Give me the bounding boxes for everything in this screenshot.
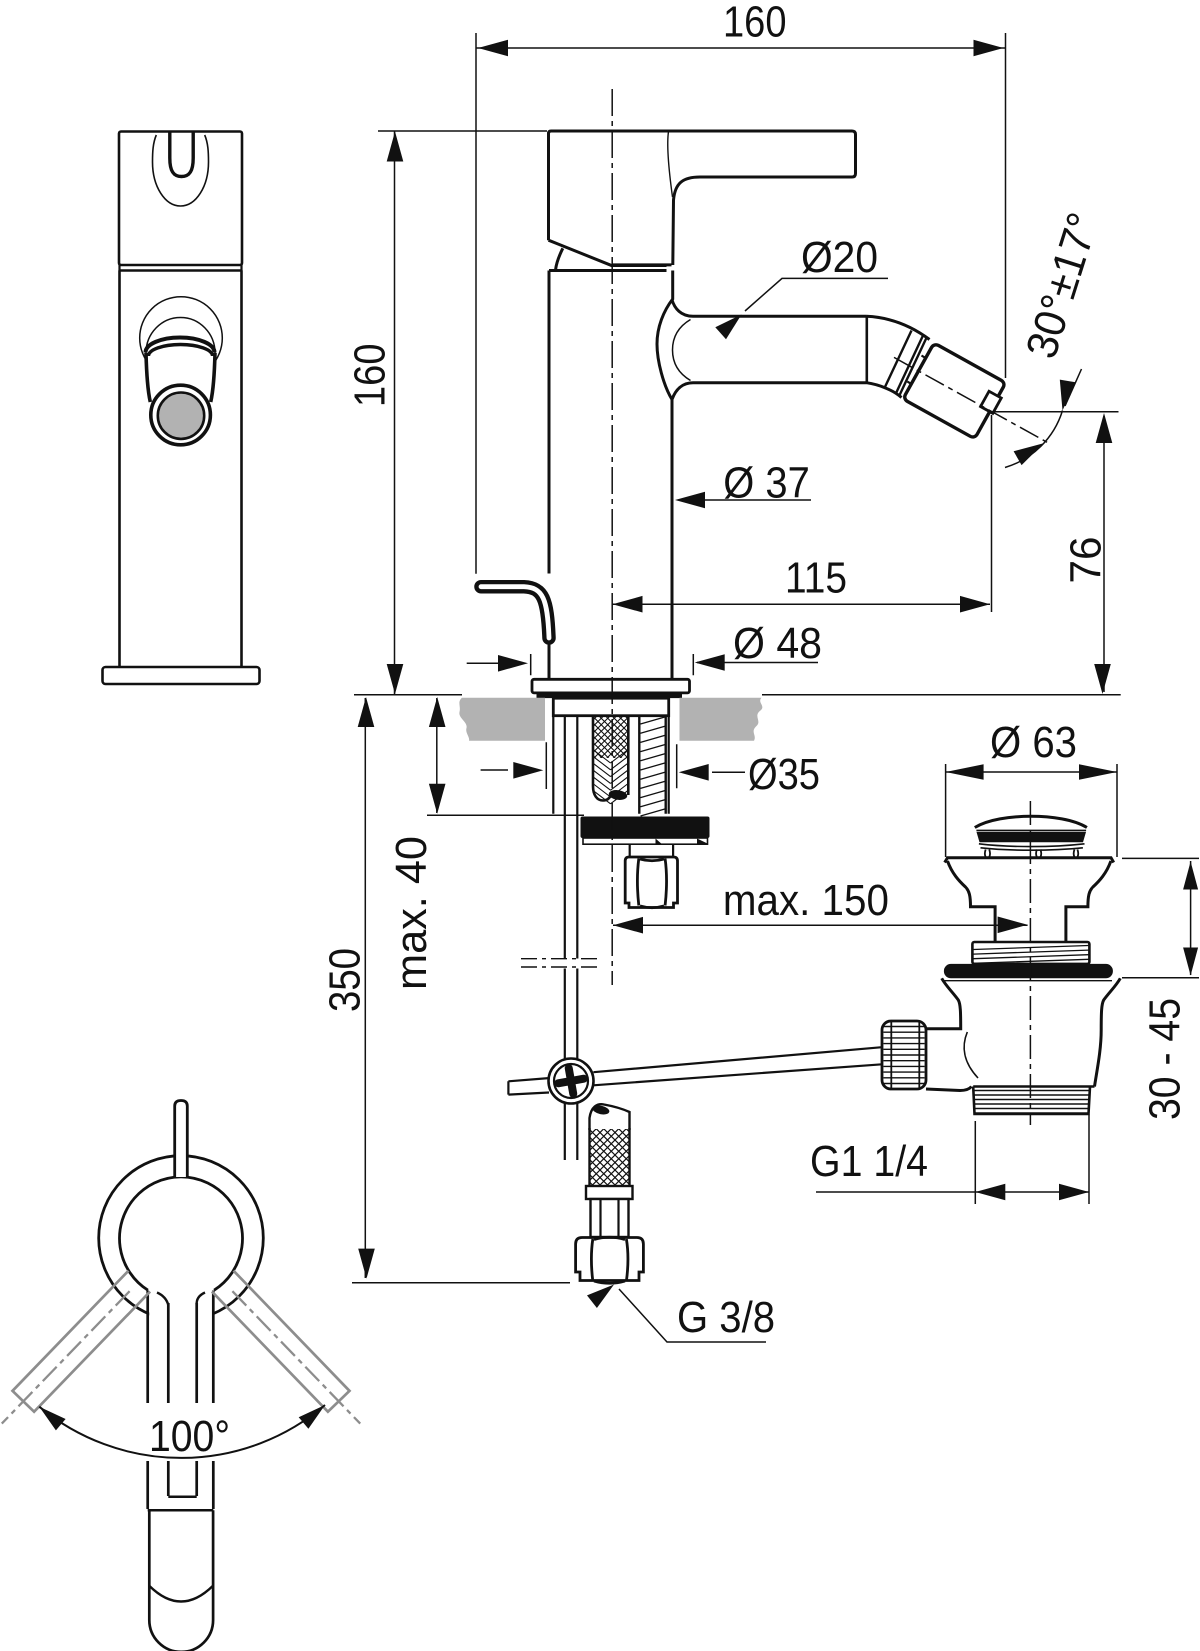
svg-text:160: 160 xyxy=(723,0,787,46)
svg-text:30 - 45: 30 - 45 xyxy=(1141,998,1190,1120)
svg-text:350: 350 xyxy=(321,948,370,1012)
svg-text:76: 76 xyxy=(1062,537,1111,584)
svg-text:G 3/8: G 3/8 xyxy=(677,1293,775,1342)
svg-text:G1 1/4: G1 1/4 xyxy=(810,1137,928,1186)
svg-text:max. 150: max. 150 xyxy=(723,876,889,925)
svg-text:160: 160 xyxy=(346,344,395,408)
svg-text:max. 40: max. 40 xyxy=(387,836,436,990)
svg-text:Ø 48: Ø 48 xyxy=(733,619,822,668)
svg-text:Ø 63: Ø 63 xyxy=(990,718,1077,767)
svg-text:Ø20: Ø20 xyxy=(801,233,878,282)
svg-text:115: 115 xyxy=(785,554,847,603)
svg-text:Ø 37: Ø 37 xyxy=(723,459,810,508)
svg-text:Ø35: Ø35 xyxy=(748,750,820,799)
svg-text:100°: 100° xyxy=(149,1412,230,1461)
